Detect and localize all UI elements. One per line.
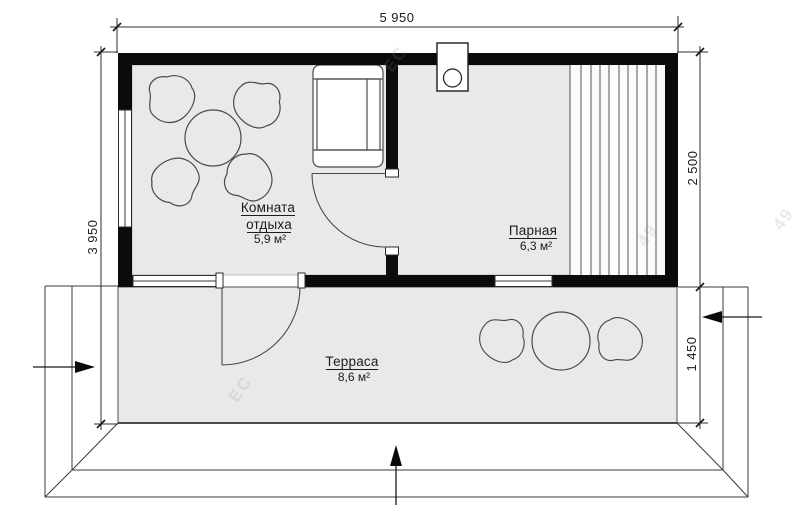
wall-bottom-a <box>118 275 133 287</box>
sofa <box>313 65 383 167</box>
floor-plan: 5 950 3 950 2 500 1 450 Комната отдыха 5… <box>0 0 800 523</box>
steam-room-name: Парная <box>509 223 557 238</box>
wall-partition-lower <box>386 255 398 287</box>
rest-room-name-line1: Комната <box>241 200 296 215</box>
terrace-floor <box>118 287 677 423</box>
window-steam-bottom <box>495 276 552 287</box>
stove-icon <box>437 43 468 91</box>
window-left <box>119 110 132 227</box>
wall-right <box>665 53 678 287</box>
window-rest-bottom <box>133 276 217 287</box>
terrace-area: 8,6 м² <box>338 370 370 384</box>
dimension-main-depth: 2 500 <box>685 150 700 185</box>
watermark-fragment: 49 <box>769 204 798 234</box>
rest-room-area: 5,9 м² <box>254 232 286 246</box>
wall-left-upper <box>118 53 132 110</box>
steam-room-area: 6,3 м² <box>520 239 552 253</box>
rest-room-name-line2: отдыха <box>246 217 292 232</box>
dimension-terrace-depth: 1 450 <box>684 336 699 371</box>
floor-plan-drawing: 5 950 3 950 2 500 1 450 Комната отдыха 5… <box>0 0 800 523</box>
dimension-total-depth: 3 950 <box>85 219 100 254</box>
dimension-total-width: 5 950 <box>379 10 414 25</box>
entrance-arrow-right <box>702 311 762 323</box>
entrance-arrow-left <box>33 361 95 373</box>
terrace-name: Терраса <box>325 354 378 369</box>
wall-bottom-c <box>552 275 678 287</box>
wall-bottom-b <box>305 275 495 287</box>
entrance-arrow-bottom <box>390 445 402 505</box>
